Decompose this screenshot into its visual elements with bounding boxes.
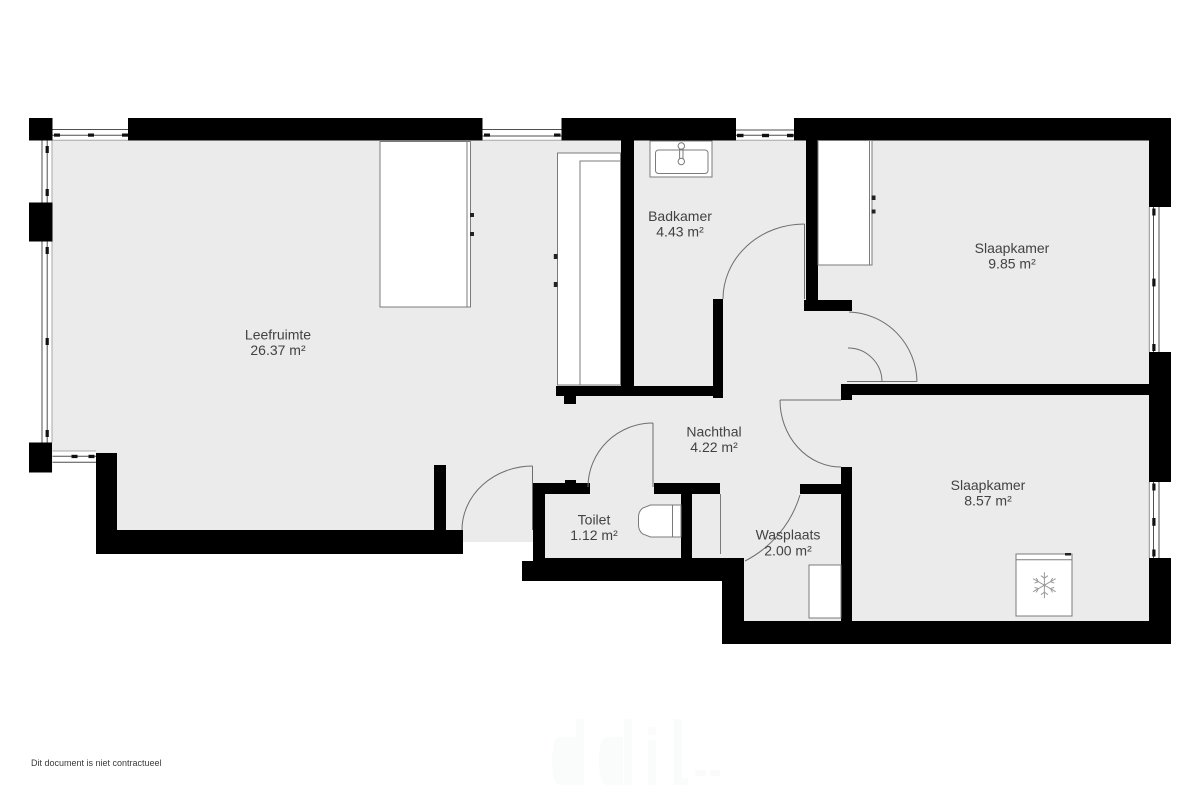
svg-text:4.43 m²: 4.43 m²	[656, 224, 704, 240]
svg-text:9.85 m²: 9.85 m²	[988, 256, 1036, 272]
svg-text:8.57 m²: 8.57 m²	[964, 493, 1012, 509]
svg-text:Nachthal: Nachthal	[686, 424, 741, 440]
svg-text:Toilet: Toilet	[578, 512, 611, 528]
svg-text:1.12 m²: 1.12 m²	[570, 527, 618, 543]
svg-text:2.00 m²: 2.00 m²	[764, 543, 812, 559]
svg-text:Badkamer: Badkamer	[648, 208, 712, 224]
svg-text:Leefruimte: Leefruimte	[245, 327, 311, 343]
svg-text:Wasplaats: Wasplaats	[756, 527, 821, 543]
svg-text:Slaapkamer: Slaapkamer	[975, 240, 1050, 256]
svg-text:4.22 m²: 4.22 m²	[690, 439, 738, 455]
svg-text:26.37 m²: 26.37 m²	[250, 342, 306, 358]
svg-text:Dit document is niet contractu: Dit document is niet contractueel	[31, 758, 162, 768]
svg-text:Slaapkamer: Slaapkamer	[951, 477, 1026, 493]
